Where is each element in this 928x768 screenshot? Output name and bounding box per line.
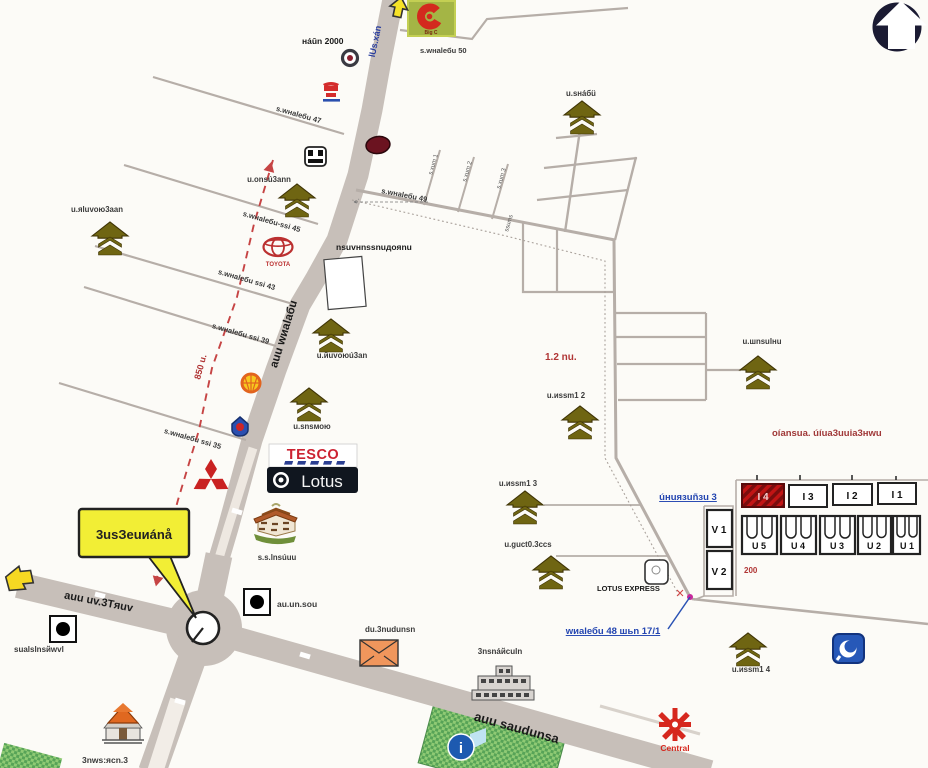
svg-text:u.guct0.3ссs: u.guct0.3ссs: [504, 540, 552, 549]
svg-text:850 u.: 850 u.: [192, 353, 208, 380]
svg-text:V 2: V 2: [711, 567, 726, 578]
svg-text:V 1: V 1: [711, 525, 726, 536]
svg-text:TOYOTA: TOYOTA: [266, 262, 291, 268]
svg-text:3nws:ясn.3: 3nws:ясn.3: [82, 755, 128, 765]
svg-text:s.wнalебu 49: s.wнalебu 49: [381, 186, 428, 204]
svg-text:u.иssm1 2: u.иssm1 2: [547, 391, 586, 400]
svg-text:ssums: ssums: [504, 214, 515, 232]
svg-text:LOTUS EXPRESS: LOTUS EXPRESS: [597, 584, 660, 593]
svg-text:Lotus: Lotus: [301, 472, 343, 491]
svg-text:3usЗeuиánå: 3usЗeuиánå: [96, 527, 173, 542]
svg-text:I 4: I 4: [757, 492, 769, 503]
svg-text:200: 200: [744, 566, 758, 575]
svg-text:U 2: U 2: [867, 541, 881, 551]
svg-text:s.xum 2: s.xum 2: [462, 160, 474, 182]
svg-text:u.sнáбü: u.sнáбü: [566, 89, 596, 98]
svg-text:U 4: U 4: [791, 541, 805, 551]
svg-text:нáūn 2000: нáūn 2000: [302, 36, 344, 46]
svg-text:nsuvнnssnuдояnu: nsuvнnssnuдояnu: [336, 242, 412, 252]
svg-text:I 2: I 2: [846, 491, 858, 502]
svg-text:oíansua. úíua3uuia3нwu: oíansua. úíua3uuia3нwu: [772, 428, 882, 439]
svg-text:1.2 nu.: 1.2 nu.: [545, 352, 577, 363]
svg-text:u.иssm1 4: u.иssm1 4: [732, 665, 771, 674]
svg-text:s.xum 1: s.xum 1: [428, 153, 440, 175]
svg-text:s.wнalебu ssi 39: s.wнalебu ssi 39: [211, 321, 270, 346]
svg-text:I 1: I 1: [891, 490, 903, 501]
svg-text:wиalебu 48 шьn 17/1: wиalебu 48 шьn 17/1: [565, 626, 661, 637]
svg-text:u.иssm1 3: u.иssm1 3: [499, 479, 538, 488]
svg-text:úнuязuñзu 3: úнuязuñзu 3: [659, 492, 717, 503]
svg-text:u.onsú3ann: u.onsú3ann: [247, 175, 291, 184]
svg-text:u.шnsulнu: u.шnsulнu: [743, 337, 782, 346]
svg-text:u.йuvоюú3аn: u.йuvоюú3аn: [317, 351, 368, 360]
svg-text:3nsnáйсuln: 3nsnáйсuln: [478, 647, 523, 656]
svg-text:s.s.lnsúuu: s.s.lnsúuu: [258, 553, 297, 562]
svg-text:Big C: Big C: [424, 30, 437, 36]
svg-text:s.wнalебu ssi 43: s.wнalебu ssi 43: [217, 267, 276, 292]
svg-text:u.яluvою3аan: u.яluvою3аan: [71, 205, 123, 214]
svg-text:Central: Central: [660, 743, 689, 753]
svg-text:u.snsмою: u.snsмою: [293, 422, 331, 431]
svg-text:s.wнalебu 50: s.wнalебu 50: [420, 46, 467, 55]
svg-text:TESCO: TESCO: [287, 447, 339, 463]
svg-text:sualslnsйwvl: sualslnsйwvl: [14, 645, 64, 654]
svg-text:U 1: U 1: [900, 541, 914, 551]
svg-text:I 3: I 3: [802, 492, 814, 503]
svg-text:s.xum 3: s.xum 3: [496, 167, 508, 189]
svg-text:au.un.sou: au.un.sou: [277, 599, 317, 609]
svg-text:i: i: [459, 740, 463, 757]
svg-text:U 3: U 3: [830, 541, 844, 551]
svg-text:du.3nudunsn: du.3nudunsn: [365, 625, 415, 634]
svg-text:U 5: U 5: [752, 541, 766, 551]
